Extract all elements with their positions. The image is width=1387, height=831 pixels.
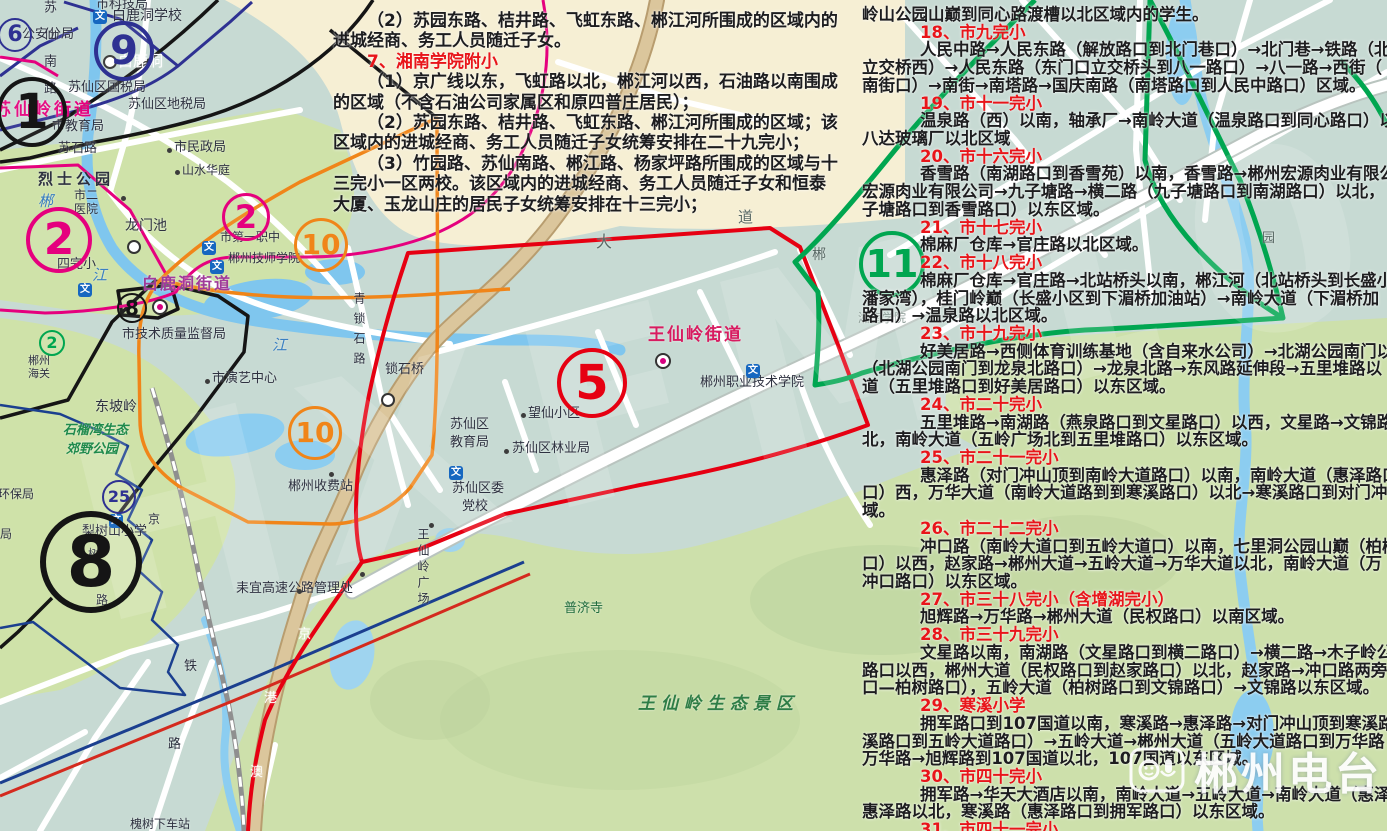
map-label: 路 (168, 738, 181, 751)
map-label: 郴州技师学院 (228, 252, 300, 264)
map-label: 市民政局 (174, 141, 226, 154)
place-ring-marker (381, 393, 395, 407)
map-label: 东坡岭 (95, 400, 137, 414)
map-label: 江 (92, 268, 107, 283)
map-label: 市二 (74, 189, 98, 201)
school-icon: 文 (449, 466, 463, 480)
station-logo-icon (1128, 746, 1186, 794)
map-label: 京 (148, 513, 160, 525)
map-label: 大 (596, 234, 612, 250)
map-label: 教育局 (450, 436, 489, 449)
note-left-line: 大厦、玉龙山庄的居民子女统筹安排在十三完小； (333, 190, 707, 215)
district-badge-2: 2 (26, 207, 92, 273)
map-label: 龙门池 (125, 219, 167, 233)
district-badge-10: 10 (294, 218, 348, 272)
note-right-line: 岭山公园山巅到同心路渡槽以北区域内的学生。 (862, 1, 1209, 25)
school-icon: 文 (202, 241, 216, 255)
poi-dot (429, 523, 434, 528)
map-label: 耒宜高速公路管理处 (236, 582, 353, 595)
poi-dot (504, 449, 509, 454)
station-name: 郴州电台 (1194, 738, 1382, 802)
map-label: 槐树下车站 (130, 818, 190, 830)
map-label: 京 (298, 628, 311, 641)
map-label: 郴 (812, 248, 826, 262)
map-label: 道 (738, 210, 753, 225)
map-label: 郴 (38, 194, 53, 209)
district-badge-8: 8 (117, 293, 147, 323)
map-label: 烈士公园 (38, 172, 114, 187)
district-badge-8: 8 (40, 511, 142, 613)
poi-dot (521, 413, 526, 418)
map-label: 王仙岭街道 (648, 327, 743, 344)
city-district-map[interactable]: HXFM102 市科技局白鹿洞学校公安分局白鹿洞苏仙区国税局苏仙区地税局苏仙岭街… (0, 0, 1387, 831)
map-label: 王仙岭广场 (417, 528, 429, 608)
poi-dot (167, 148, 172, 153)
map-label: 铁 (184, 660, 197, 673)
map-label: 苏仙区 (450, 418, 489, 431)
poi-dot (175, 170, 180, 175)
map-label: 海关 (28, 368, 50, 379)
map-label: 澳 (250, 766, 263, 779)
map-label: 青锁石路 (353, 292, 365, 372)
district-badge-25: 25 (102, 480, 136, 514)
school-icon: 文 (93, 10, 107, 24)
district-badge-1: 1 (0, 77, 67, 147)
street-office-marker (152, 299, 168, 315)
district-badge-10: 10 (288, 406, 342, 460)
map-label: 局 (0, 528, 12, 540)
poi-dot (329, 472, 334, 477)
school-icon: 文 (746, 364, 760, 378)
map-label: 园 (1262, 232, 1275, 245)
note-right-line: 域。 (862, 497, 895, 521)
place-ring-marker (127, 240, 141, 254)
map-label: 苏仙区地税局 (128, 98, 206, 111)
map-label: 苏仙区国税局 (68, 81, 146, 94)
poi-dot (297, 589, 302, 594)
district-badge-2: 2 (222, 193, 270, 241)
map-label: 白鹿洞街道 (142, 276, 232, 292)
map-label: 港 (264, 692, 277, 705)
map-label: 石榴湾生态 (63, 424, 128, 437)
map-label: 苏仙区委 (452, 482, 504, 495)
map-label: 锁石桥 (385, 363, 424, 376)
map-label: 江 (272, 338, 287, 353)
school-icon: 文 (78, 283, 92, 297)
map-label: 市演艺中心 (212, 372, 277, 385)
poi-dot (205, 379, 210, 384)
map-label: 市技术质量监督局 (122, 328, 226, 341)
street-office-marker (655, 353, 671, 369)
map-label: 郴州 (28, 355, 50, 366)
note-right-line: 口）西，万华大道（南岭大道路到到寒溪路口）以北→寒溪路口到对门冲 (862, 479, 1387, 503)
poi-dot (121, 196, 126, 201)
poi-dot (360, 572, 365, 577)
district-badge-9: 9 (94, 21, 154, 81)
map-label: 郊野公园 (66, 443, 118, 456)
station-watermark: 郴州电台 (1128, 738, 1382, 802)
map-label: 苏石路 (58, 142, 97, 155)
school-icon: 文 (210, 260, 224, 274)
map-label: 环保局 (0, 488, 34, 500)
note-right-line: 31、市四十一完小 (920, 816, 1058, 831)
map-label: 普济寺 (564, 602, 603, 615)
map-label: 苏仙区林业局 (512, 442, 590, 455)
district-badge-2: 2 (39, 330, 65, 356)
map-label: 王仙岭生态景区 (638, 696, 799, 713)
district-badge-5: 5 (557, 348, 627, 418)
map-label: 郴州收费站 (288, 480, 353, 493)
map-label: 党校 (462, 500, 488, 513)
map-label: 山水华庭 (182, 164, 230, 176)
